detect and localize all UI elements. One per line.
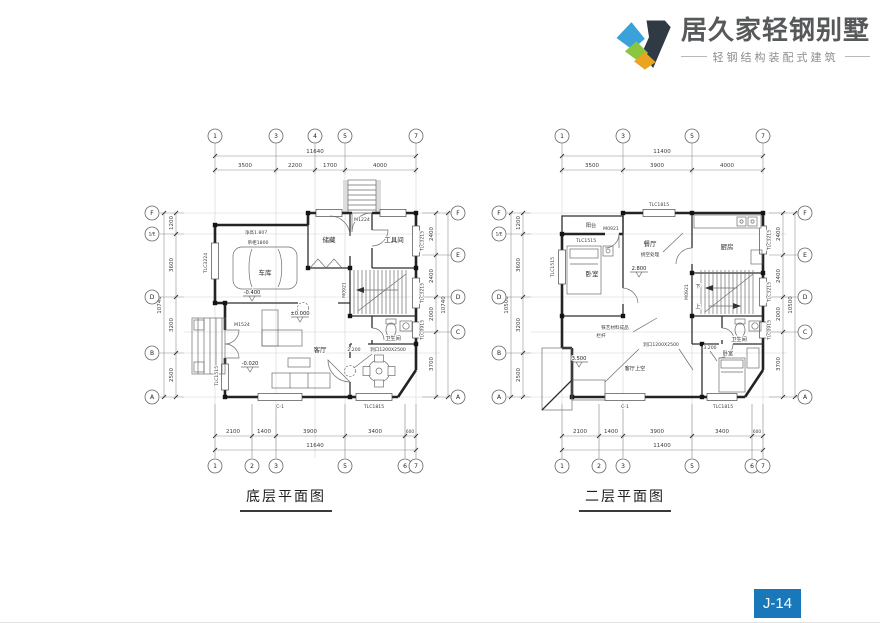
grid-label: 6: [403, 463, 407, 470]
grid-label: 7: [761, 133, 765, 140]
window-tag: TLC1515: [575, 238, 596, 244]
note-label: 洞口1200X2500: [643, 341, 679, 348]
window-tag: TLC3215: [767, 282, 773, 303]
dim-label: 11640: [306, 443, 324, 449]
grid-label: 3: [274, 463, 278, 470]
dimensions-right: 2400 2400 2000 3700 10500: [769, 211, 799, 399]
grid-label: 1: [213, 133, 217, 140]
grid-label: 7: [761, 463, 765, 470]
dim-label: 2500: [516, 368, 522, 382]
dim-label: 11400: [653, 149, 671, 155]
note-label: 洞口1200X2500: [370, 346, 406, 353]
dim-label: 1400: [257, 429, 271, 435]
grid-label: 6: [750, 463, 754, 470]
room-label-bath: 卫生间: [731, 335, 747, 343]
grid-label: 5: [343, 133, 347, 140]
door-tag: M0921: [603, 226, 619, 232]
note-label: 挑空处理: [641, 251, 660, 258]
room-label-kitchen: 厨房: [721, 242, 734, 251]
dining-table-icon: [368, 360, 390, 382]
stair-up-label: 上: [695, 302, 700, 310]
dimensions-left: 1200 3600 3200 2500 10500: [504, 211, 531, 399]
note-label: 栏杆: [596, 332, 606, 339]
room-label-dining: 餐厅: [644, 239, 658, 248]
grid-label: 1/E: [496, 232, 503, 237]
bed-icon: [719, 358, 745, 392]
dim-label: 3500: [238, 163, 252, 169]
drawing-sheet: 居久家轻钢别墅 轻钢结构装配式建筑 11640 3500 2200 1700 4…: [0, 0, 880, 623]
window-tag: TLC1815: [712, 404, 733, 410]
note-label: 2.200: [347, 347, 360, 353]
dim-label: 2400: [776, 227, 782, 241]
window-tag: TLC0915: [767, 320, 773, 341]
stair: [354, 270, 406, 314]
room-label-balcony: 阳台: [586, 221, 596, 229]
door-tag: M0921: [342, 282, 348, 298]
stair-down-label: 下: [695, 283, 700, 290]
dimensions-bottom: 2100 1400 3900 3400 600 11640: [213, 404, 418, 458]
dim-label: 3700: [776, 357, 782, 371]
note-label: 净高1.807: [245, 229, 267, 236]
counter-icon: [262, 310, 278, 346]
second-plan-caption: 二层平面图: [579, 486, 671, 512]
window-tag: TLC1515: [550, 257, 556, 278]
tv-cabinet-icon: [288, 358, 310, 367]
grid-label: F: [803, 210, 807, 217]
ground-plan-caption: 底层平面图: [240, 486, 332, 512]
dim-label: 3600: [516, 258, 522, 272]
grid-label: B: [150, 350, 154, 357]
grid-label: F: [150, 210, 154, 217]
grid-label: 7: [414, 133, 418, 140]
room-label-void: 客厅上空: [625, 364, 646, 372]
grid-label: C: [803, 329, 807, 336]
ground-plan: 11640 3500 2200 1700 4000 2100 1400 3900…: [140, 118, 470, 478]
level-label: -0.400: [244, 290, 261, 296]
tagline-rule-left: [681, 56, 707, 57]
dim-label: 3600: [169, 258, 175, 272]
brand-logo-icon: [614, 16, 674, 70]
dim-label: 3900: [650, 429, 664, 435]
dim-label: 4000: [720, 163, 734, 169]
grid-label: D: [150, 294, 155, 301]
brand-logo: 居久家轻钢别墅 轻钢结构装配式建筑: [614, 16, 870, 70]
grid-label: 7: [414, 463, 418, 470]
grid-label: 4: [313, 133, 317, 140]
grid-label: 1: [213, 463, 217, 470]
level-label: 2.800: [632, 266, 647, 272]
dim-label: 1200: [516, 216, 522, 230]
room-label-storage: 储藏: [323, 235, 337, 244]
dim-label: 11400: [653, 443, 671, 449]
dim-label: 2000: [429, 307, 435, 321]
dim-label: 600: [753, 429, 761, 435]
room-label-living: 客厅: [314, 345, 328, 354]
dim-label: 1200: [169, 216, 175, 230]
dim-label: 2000: [776, 307, 782, 321]
grid-label: 2: [250, 463, 254, 470]
grid-label: B: [497, 350, 501, 357]
dim-label: 3400: [368, 429, 382, 435]
dim-label: 600: [406, 429, 414, 435]
car-icon: [233, 247, 297, 289]
window-tag: TLC0915: [420, 320, 426, 341]
dim-label: 2500: [169, 368, 175, 382]
dim-label: 3900: [650, 163, 664, 169]
labels: 车库 储藏 工具间 客厅 卫生间 -0.400 ±0.000 -0.020 净高…: [203, 217, 426, 410]
second-plan: 11400 3500 3900 4000 2100 1400 3900 3400…: [487, 118, 817, 478]
grid-label: 5: [690, 463, 694, 470]
level-label: 3.200: [703, 345, 716, 351]
dim-label: 2100: [573, 429, 587, 435]
dim-label: 3900: [303, 429, 317, 435]
grid-label: E: [803, 252, 807, 259]
dim-label: 10500: [788, 296, 794, 314]
grid-label: D: [456, 294, 461, 301]
window-tag: TLC3224: [203, 253, 209, 274]
dim-label: 3200: [516, 318, 522, 332]
dim-label: 2400: [429, 227, 435, 241]
dim-label: 3200: [169, 318, 175, 332]
dimensions-right: 2400 2400 2000 3700 10740: [422, 211, 452, 399]
grid-label: 1: [560, 463, 564, 470]
dimensions-bottom: 2100 1400 3900 3400 600 11400: [560, 404, 765, 458]
grid-label: E: [456, 252, 460, 259]
dim-label: 2400: [776, 269, 782, 283]
porch: [192, 318, 225, 374]
dim-label: 2100: [226, 429, 240, 435]
door-tag: M1524: [234, 322, 250, 328]
grid-label: 2: [597, 463, 601, 470]
grid-label: 3: [274, 133, 278, 140]
grid-label: 1/E: [149, 232, 156, 237]
window-tag: C-1: [621, 404, 629, 410]
window-tag: TLC1515: [214, 366, 220, 387]
room-label-bath: 卫生间: [385, 334, 401, 342]
wardrobe-icon: [747, 348, 759, 368]
grid-label: 5: [690, 133, 694, 140]
dim-label: 3700: [429, 357, 435, 371]
tagline-text: 轻钢结构装配式建筑: [713, 49, 839, 65]
dim-label: 1400: [604, 429, 618, 435]
window-tag: TLC1815: [363, 404, 384, 410]
doors: [605, 234, 734, 358]
note-label: 铁艺材料成品: [601, 324, 629, 331]
dim-label: 11640: [306, 149, 324, 155]
brand-tagline: 轻钢结构装配式建筑: [681, 49, 870, 65]
sofa-icon: [272, 373, 330, 388]
dim-label: 3400: [715, 429, 729, 435]
level-label: 3.500: [572, 356, 587, 362]
room-label-bedroom-right: 卧室: [723, 349, 733, 357]
grid-label: 1: [560, 133, 564, 140]
window-tag: TLC3215: [767, 230, 773, 251]
grid-label: F: [497, 210, 501, 217]
grid-label: 3: [621, 133, 625, 140]
door-tag: M1224: [354, 217, 370, 223]
window-tag: TLC3215: [420, 283, 426, 304]
grid-label: C: [456, 329, 460, 336]
grid-label: D: [803, 294, 808, 301]
room-label-garage: 车库: [259, 268, 273, 277]
terrace-hatch: [542, 348, 572, 410]
sheet-number-badge: J-14: [754, 589, 801, 618]
entry-stair-exterior: [343, 180, 381, 213]
window-tag: TLC3215: [420, 231, 426, 252]
dimensions-left: 1200 3600 3200 2500 10740: [157, 211, 184, 399]
stair: 下 上: [695, 270, 753, 314]
grid-label: 3: [621, 463, 625, 470]
brand-name: 居久家轻钢别墅: [681, 16, 870, 46]
dimensions-top: 11400 3500 3900 4000: [560, 143, 765, 174]
dim-label: 10740: [441, 296, 447, 314]
grid-label: F: [456, 210, 460, 217]
dimensions-top: 11640 3500 2200 1700 4000: [213, 143, 418, 174]
room-label-bedroom-left: 卧室: [586, 269, 600, 278]
dim-label: 4000: [373, 163, 387, 169]
door-tag: M0921: [684, 284, 690, 300]
dim-label: 2400: [429, 269, 435, 283]
dim-label: 3500: [585, 163, 599, 169]
grid-label: 5: [343, 463, 347, 470]
tagline-rule-right: [845, 56, 871, 57]
grid-label: D: [497, 294, 502, 301]
doors: [225, 213, 388, 382]
level-label: -0.020: [242, 361, 259, 367]
level-label: ±0.000: [290, 311, 309, 317]
dim-label: 2200: [288, 163, 302, 169]
window-tag: TLC1815: [648, 202, 669, 208]
room-label-tool: 工具间: [384, 236, 404, 244]
window-tag: C-1: [276, 404, 284, 410]
dim-label: 1700: [323, 163, 337, 169]
note-label: 吊柜1800: [248, 239, 269, 246]
